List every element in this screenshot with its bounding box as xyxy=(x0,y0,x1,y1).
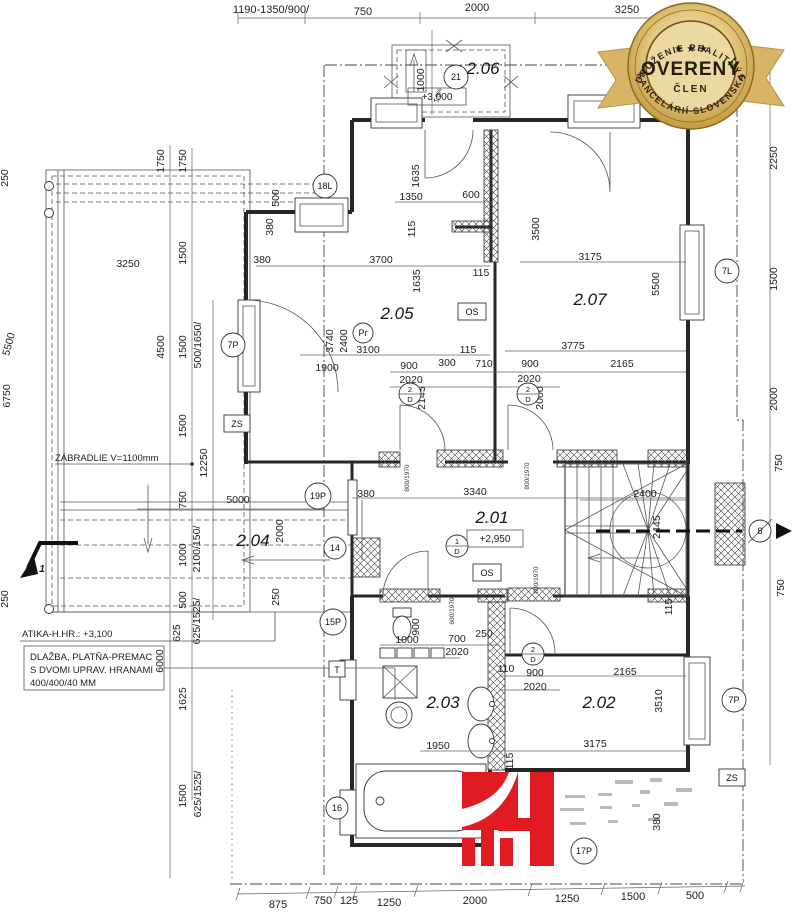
dim-label: 700 xyxy=(448,633,466,645)
marker-8: 8 xyxy=(757,526,762,536)
dim-label: 1190-1350/900/ xyxy=(233,4,310,16)
room-207-dimensions: 3500 3175 5500 xyxy=(530,217,662,296)
dim-label: 1750 xyxy=(155,149,167,173)
dim-label: 900 xyxy=(400,360,418,372)
door-2-top: 2 xyxy=(408,385,412,394)
marker-os-lower: OS xyxy=(480,568,493,578)
dim-label: 115 xyxy=(663,598,675,615)
dim-label: 625 xyxy=(171,624,183,642)
room-label-202: 2.02 xyxy=(581,693,616,712)
dim-label: 300 xyxy=(438,357,456,369)
section-marker-1 xyxy=(20,543,78,578)
paving-note-line2: S DVOMI UPRAV. HRANAMI xyxy=(30,665,153,676)
dim-label: 750 xyxy=(773,454,785,472)
marker-t: T xyxy=(334,665,340,675)
dim-label: 500/1650/ xyxy=(192,322,204,369)
marker-17p: 17P xyxy=(576,846,592,856)
dim-label: 3700 xyxy=(369,254,393,266)
dim-label: 750 xyxy=(177,491,189,509)
dim-label: 2000 xyxy=(768,387,780,411)
dim-label: 1950 xyxy=(426,740,450,752)
dim-label: 600 xyxy=(462,189,480,201)
dim-label: 625/1525/ xyxy=(192,771,204,818)
paving-note-line1: DLAŽBA, PLATŇA-PREMAC xyxy=(30,652,152,663)
dim-label: 2165 xyxy=(610,358,634,370)
dim-label: 3500 xyxy=(530,217,542,241)
dim-label: 2000 xyxy=(463,895,487,907)
dim-label: 1500 xyxy=(177,414,189,438)
dim-label: 115 xyxy=(504,752,516,769)
marker-os-upper: OS xyxy=(465,307,478,317)
dim-label: 625/1525/ xyxy=(191,598,203,645)
door-2-bottom: D xyxy=(530,655,536,664)
room-label-206: 2.06 xyxy=(465,59,500,78)
room-labels: 2.06 2.05 2.07 2.01 2.04 2.03 2.02 xyxy=(235,59,616,712)
dim-label: 1250 xyxy=(555,893,579,905)
dim-label: 1900 xyxy=(315,362,339,374)
marker-15p: 15P xyxy=(325,617,341,627)
dim-label: 12250 xyxy=(198,448,210,477)
dim-label: 2445 xyxy=(651,515,663,539)
marker-19p: 19P xyxy=(310,491,326,501)
badge-member-label: ČLEN xyxy=(673,82,708,95)
left-dimensions: 1750 1750 3250 1500 4500 1500 500/1650/ … xyxy=(0,149,286,817)
dim-label: 750 xyxy=(775,579,787,597)
dim-label: 250 xyxy=(475,628,493,640)
door-2-top: 2 xyxy=(526,385,530,394)
dim-label: 1250 xyxy=(377,897,401,909)
paving-note-line3: 400/400/40 MM xyxy=(30,678,96,689)
dim-label: 115 xyxy=(460,344,477,356)
dim-label: 875 xyxy=(269,899,287,911)
top-dimensions: 1190-1350/900/ 750 2000 3250 1000 1,5% xyxy=(233,2,639,104)
dim-label: 1635 xyxy=(410,164,422,188)
dim-label: 500 xyxy=(270,189,282,207)
dim-label: 2020 xyxy=(523,681,547,693)
badge-title: OVERENÝ xyxy=(641,58,741,80)
dim-label: 250 xyxy=(0,169,11,187)
floor-plan-drawing: 1190-1350/900/ 750 2000 3250 1000 1,5% 2… xyxy=(0,0,792,912)
dim-label: 115 xyxy=(473,267,490,279)
dim-label: 750 xyxy=(354,6,372,18)
dim-label: 1350 xyxy=(399,191,423,203)
level-entry: +3,000 xyxy=(422,92,453,103)
dim-label: 380 xyxy=(264,218,276,236)
dim-label: 2400 xyxy=(633,488,657,500)
faded-watermark-text xyxy=(560,778,692,825)
dim-label: 3175 xyxy=(583,738,607,750)
dim-label: 1635 xyxy=(411,269,423,293)
room-label-207: 2.07 xyxy=(572,290,607,309)
dim-label: 5000 xyxy=(226,494,250,506)
dim-label: 2020 xyxy=(445,646,469,658)
dim-label: 3340 xyxy=(463,486,487,498)
dim-label: 380 xyxy=(253,254,271,266)
dim-label: 800/1970 xyxy=(404,464,411,491)
door-2-bottom: D xyxy=(525,395,531,404)
dim-label: 710 xyxy=(475,358,493,370)
dim-label: 250 xyxy=(270,588,282,606)
level-floor: +2,950 xyxy=(480,534,511,545)
dim-label: 900 xyxy=(410,618,422,636)
dim-label: 1500 xyxy=(621,891,645,903)
dim-label: 2250 xyxy=(768,146,780,170)
dim-label: 4500 xyxy=(155,335,167,359)
dim-label: 3100 xyxy=(356,344,380,356)
dim-label: 380 xyxy=(357,488,375,500)
badge-stars: ★ ★ ★ xyxy=(674,43,709,55)
dim-label: 600/1970 xyxy=(449,597,456,624)
marker-7p-right: 7P xyxy=(728,695,739,705)
dim-label: 115 xyxy=(406,220,418,237)
dim-label: 1625 xyxy=(177,687,189,711)
dim-label: 3740 xyxy=(324,329,336,353)
marker-16: 16 xyxy=(332,803,342,813)
floor-plan-page: 1190-1350/900/ 750 2000 3250 1000 1,5% 2… xyxy=(0,0,792,912)
dim-label: 2000 xyxy=(274,519,286,543)
dim-label: 2400 xyxy=(338,329,350,353)
dim-label: 1500 xyxy=(177,784,189,808)
marker-7l: 7L xyxy=(722,266,732,276)
dim-label: 900 xyxy=(526,667,544,679)
marker-pr: Pr xyxy=(359,328,368,338)
dim-label: 2165 xyxy=(613,666,637,678)
slope-arrow-down xyxy=(144,485,152,552)
marker-18l: 18L xyxy=(317,181,332,191)
railing-note: ZÁBRADLIE V=1100mm xyxy=(55,453,159,464)
walkway-arrow-left xyxy=(242,556,330,564)
stairs-direction-arrow xyxy=(588,554,660,562)
room-label-204: 2.04 xyxy=(235,531,269,550)
dim-label: 380 xyxy=(651,813,663,831)
dim-label: 800/1970 xyxy=(533,566,540,593)
dim-label: 1000 xyxy=(177,543,189,567)
door-1-bottom: D xyxy=(454,547,460,556)
dim-label: 900 xyxy=(521,358,539,370)
attic-note: ATIKA-H.HR.: +3,100 xyxy=(22,629,112,640)
dim-label: 500 xyxy=(177,591,189,609)
dim-label: 3175 xyxy=(578,251,602,263)
dim-label: 800/1970 xyxy=(524,462,531,489)
dim-label: 125 xyxy=(340,895,358,907)
room-205-dimensions: 500 380 380 3700 1635 1350 115 600 1635 … xyxy=(253,164,489,374)
dim-label: 5500 xyxy=(0,331,18,357)
marker-7p-left: 7P xyxy=(227,340,238,350)
door-1-top: 1 xyxy=(455,537,459,546)
dim-label: 3510 xyxy=(653,689,665,713)
room-label-203: 2.03 xyxy=(425,693,460,712)
dim-label: 3775 xyxy=(561,340,585,352)
marker-zs-right: ZS xyxy=(726,773,738,783)
dim-label: 6750 xyxy=(1,384,13,408)
dim-label: 1500 xyxy=(177,241,189,265)
marker-14: 14 xyxy=(330,543,340,553)
dim-label: 3250 xyxy=(615,4,639,16)
dim-label: 1500 xyxy=(177,335,189,359)
door-2-top: 2 xyxy=(531,645,535,654)
dim-label: 1750 xyxy=(177,149,189,173)
dim-label: 500 xyxy=(686,890,704,902)
room-label-205: 2.05 xyxy=(379,304,414,323)
dim-label: 3250 xyxy=(116,258,140,270)
dim-label: 5500 xyxy=(650,272,662,296)
marker-zs-left: ZS xyxy=(231,419,243,429)
hall-dimensions: 900 2020 300 710 900 2020 2165 3775 115 … xyxy=(399,340,634,410)
section-number: 1 xyxy=(39,563,45,575)
room-label-201: 2.01 xyxy=(474,508,508,527)
dim-label: 2100/150/ xyxy=(191,526,203,573)
door-2-bottom: D xyxy=(407,395,413,404)
dim-label: 1500 xyxy=(768,267,780,291)
bottom-dimensions: 875 750 125 1250 2000 1250 1500 500 xyxy=(269,890,704,911)
dim-label: 2000 xyxy=(465,2,489,14)
dim-label: 250 xyxy=(0,590,11,608)
marker-21: 21 xyxy=(451,72,461,82)
dim-label: 110 xyxy=(498,663,515,675)
dim-label: 750 xyxy=(314,895,332,907)
